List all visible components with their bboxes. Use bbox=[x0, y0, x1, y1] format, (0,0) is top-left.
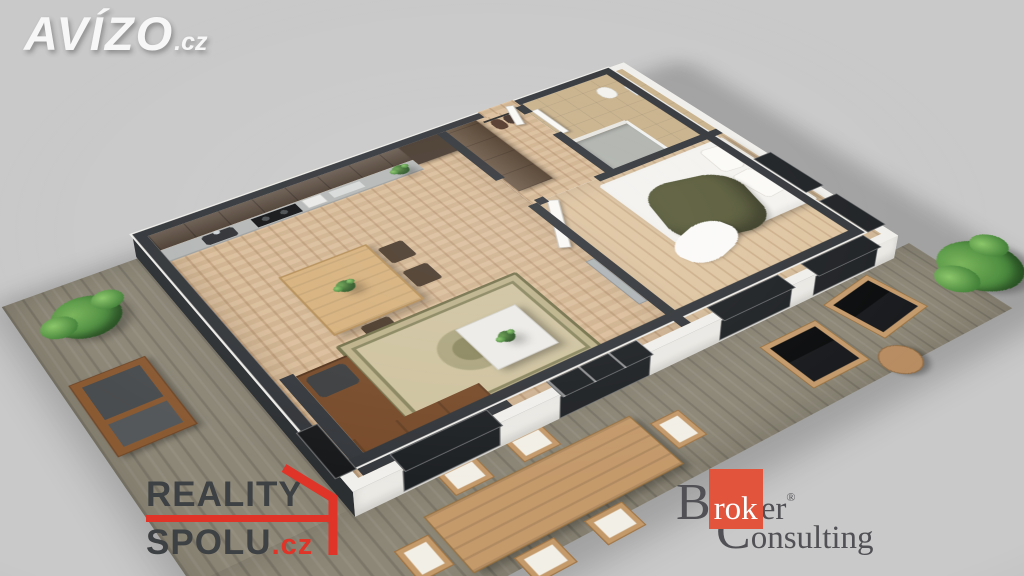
avizo-brand-text: AVÍZO bbox=[24, 7, 174, 60]
broker-rest: er bbox=[761, 491, 787, 527]
broker-initial: B bbox=[676, 474, 711, 531]
isometric-scene bbox=[148, 69, 882, 478]
house-outline-icon bbox=[280, 464, 338, 558]
registered-mark: ® bbox=[786, 490, 795, 504]
avizo-tld-text: .cz bbox=[174, 28, 207, 56]
broker-word: Broker® bbox=[676, 487, 976, 526]
spolu-text: SPOLU bbox=[146, 523, 272, 562]
floorplan-render: AVÍZO.cz REALITY SPOLU.cz Broker® Consul… bbox=[0, 0, 1024, 576]
avizo-watermark: AVÍZO.cz bbox=[24, 6, 208, 61]
reality-spolu-logo: REALITY SPOLU.cz bbox=[146, 478, 334, 561]
broker-consulting-logo: Broker® Consulting bbox=[676, 487, 976, 555]
broker-red-square: rok bbox=[711, 493, 761, 526]
